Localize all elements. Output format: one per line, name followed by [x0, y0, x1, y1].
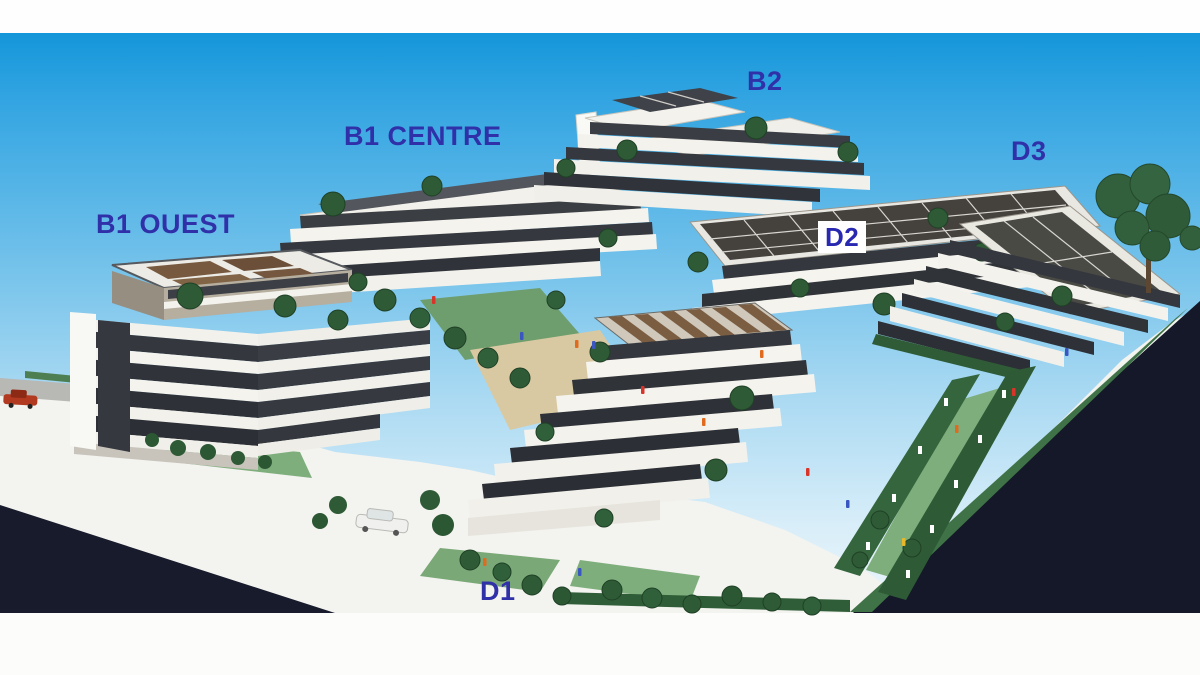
- label-b1-centre: B1 CENTRE: [344, 123, 502, 150]
- bottom-white-margin: [0, 613, 1200, 675]
- figure: [1065, 348, 1069, 356]
- figure: [575, 340, 579, 348]
- building-b2: [534, 88, 870, 217]
- tree: [177, 283, 203, 309]
- tree: [478, 348, 498, 368]
- stair-glazing: [98, 320, 130, 452]
- model-illustration: [0, 0, 1200, 675]
- bush: [329, 496, 347, 514]
- figure: [846, 500, 850, 508]
- tree: [617, 140, 637, 160]
- figure: [520, 332, 524, 340]
- bush: [231, 451, 245, 465]
- figure: [702, 418, 706, 426]
- figure: [578, 568, 582, 576]
- tree: [374, 289, 396, 311]
- label-d3: D3: [1011, 138, 1047, 165]
- tree: [996, 313, 1014, 331]
- label-d1: D1: [480, 578, 516, 605]
- tree: [536, 423, 554, 441]
- label-b2: B2: [747, 68, 783, 95]
- tree: [688, 252, 708, 272]
- tree: [763, 593, 781, 611]
- label-d2: D2: [818, 221, 866, 253]
- tree: [705, 459, 727, 481]
- top-white-margin: [0, 0, 1200, 33]
- figure: [902, 538, 906, 546]
- tree: [1052, 286, 1072, 306]
- tree: [547, 291, 565, 309]
- bush: [432, 514, 454, 536]
- tree: [410, 308, 430, 328]
- tree: [745, 117, 767, 139]
- figure: [432, 296, 436, 304]
- bush: [170, 440, 186, 456]
- tree: [722, 586, 742, 606]
- bush: [420, 490, 440, 510]
- tree: [871, 511, 889, 529]
- tree: [803, 597, 821, 615]
- figure: [641, 386, 645, 394]
- bush: [145, 433, 159, 447]
- bush: [200, 444, 216, 460]
- tree: [642, 588, 662, 608]
- end-pier: [70, 312, 96, 450]
- car-roof: [11, 389, 27, 398]
- tree: [599, 229, 617, 247]
- tree-foliage: [1140, 231, 1170, 261]
- bush: [312, 513, 328, 529]
- tree: [602, 580, 622, 600]
- tree: [349, 273, 367, 291]
- figure: [592, 341, 596, 349]
- tree: [274, 295, 296, 317]
- tree: [791, 279, 809, 297]
- bush: [258, 455, 272, 469]
- figure: [483, 558, 487, 566]
- figure: [1012, 388, 1016, 396]
- tree: [730, 386, 754, 410]
- tree: [838, 142, 858, 162]
- tree: [903, 539, 921, 557]
- photo-architectural-model: B1 OUEST B1 CENTRE B2 D2 D3 D1: [0, 0, 1200, 675]
- tree: [683, 595, 701, 613]
- tree: [595, 509, 613, 527]
- tree: [852, 552, 868, 568]
- tree: [460, 550, 480, 570]
- tree: [553, 587, 571, 605]
- tree: [321, 192, 345, 216]
- figure: [955, 425, 959, 433]
- tree: [328, 310, 348, 330]
- tree: [510, 368, 530, 388]
- figure: [760, 350, 764, 358]
- tree: [444, 327, 466, 349]
- tree: [557, 159, 575, 177]
- label-b1-ouest: B1 OUEST: [96, 211, 235, 238]
- tree: [522, 575, 542, 595]
- tree: [928, 208, 948, 228]
- tree: [422, 176, 442, 196]
- tree-foliage: [1180, 226, 1200, 250]
- figure: [806, 468, 810, 476]
